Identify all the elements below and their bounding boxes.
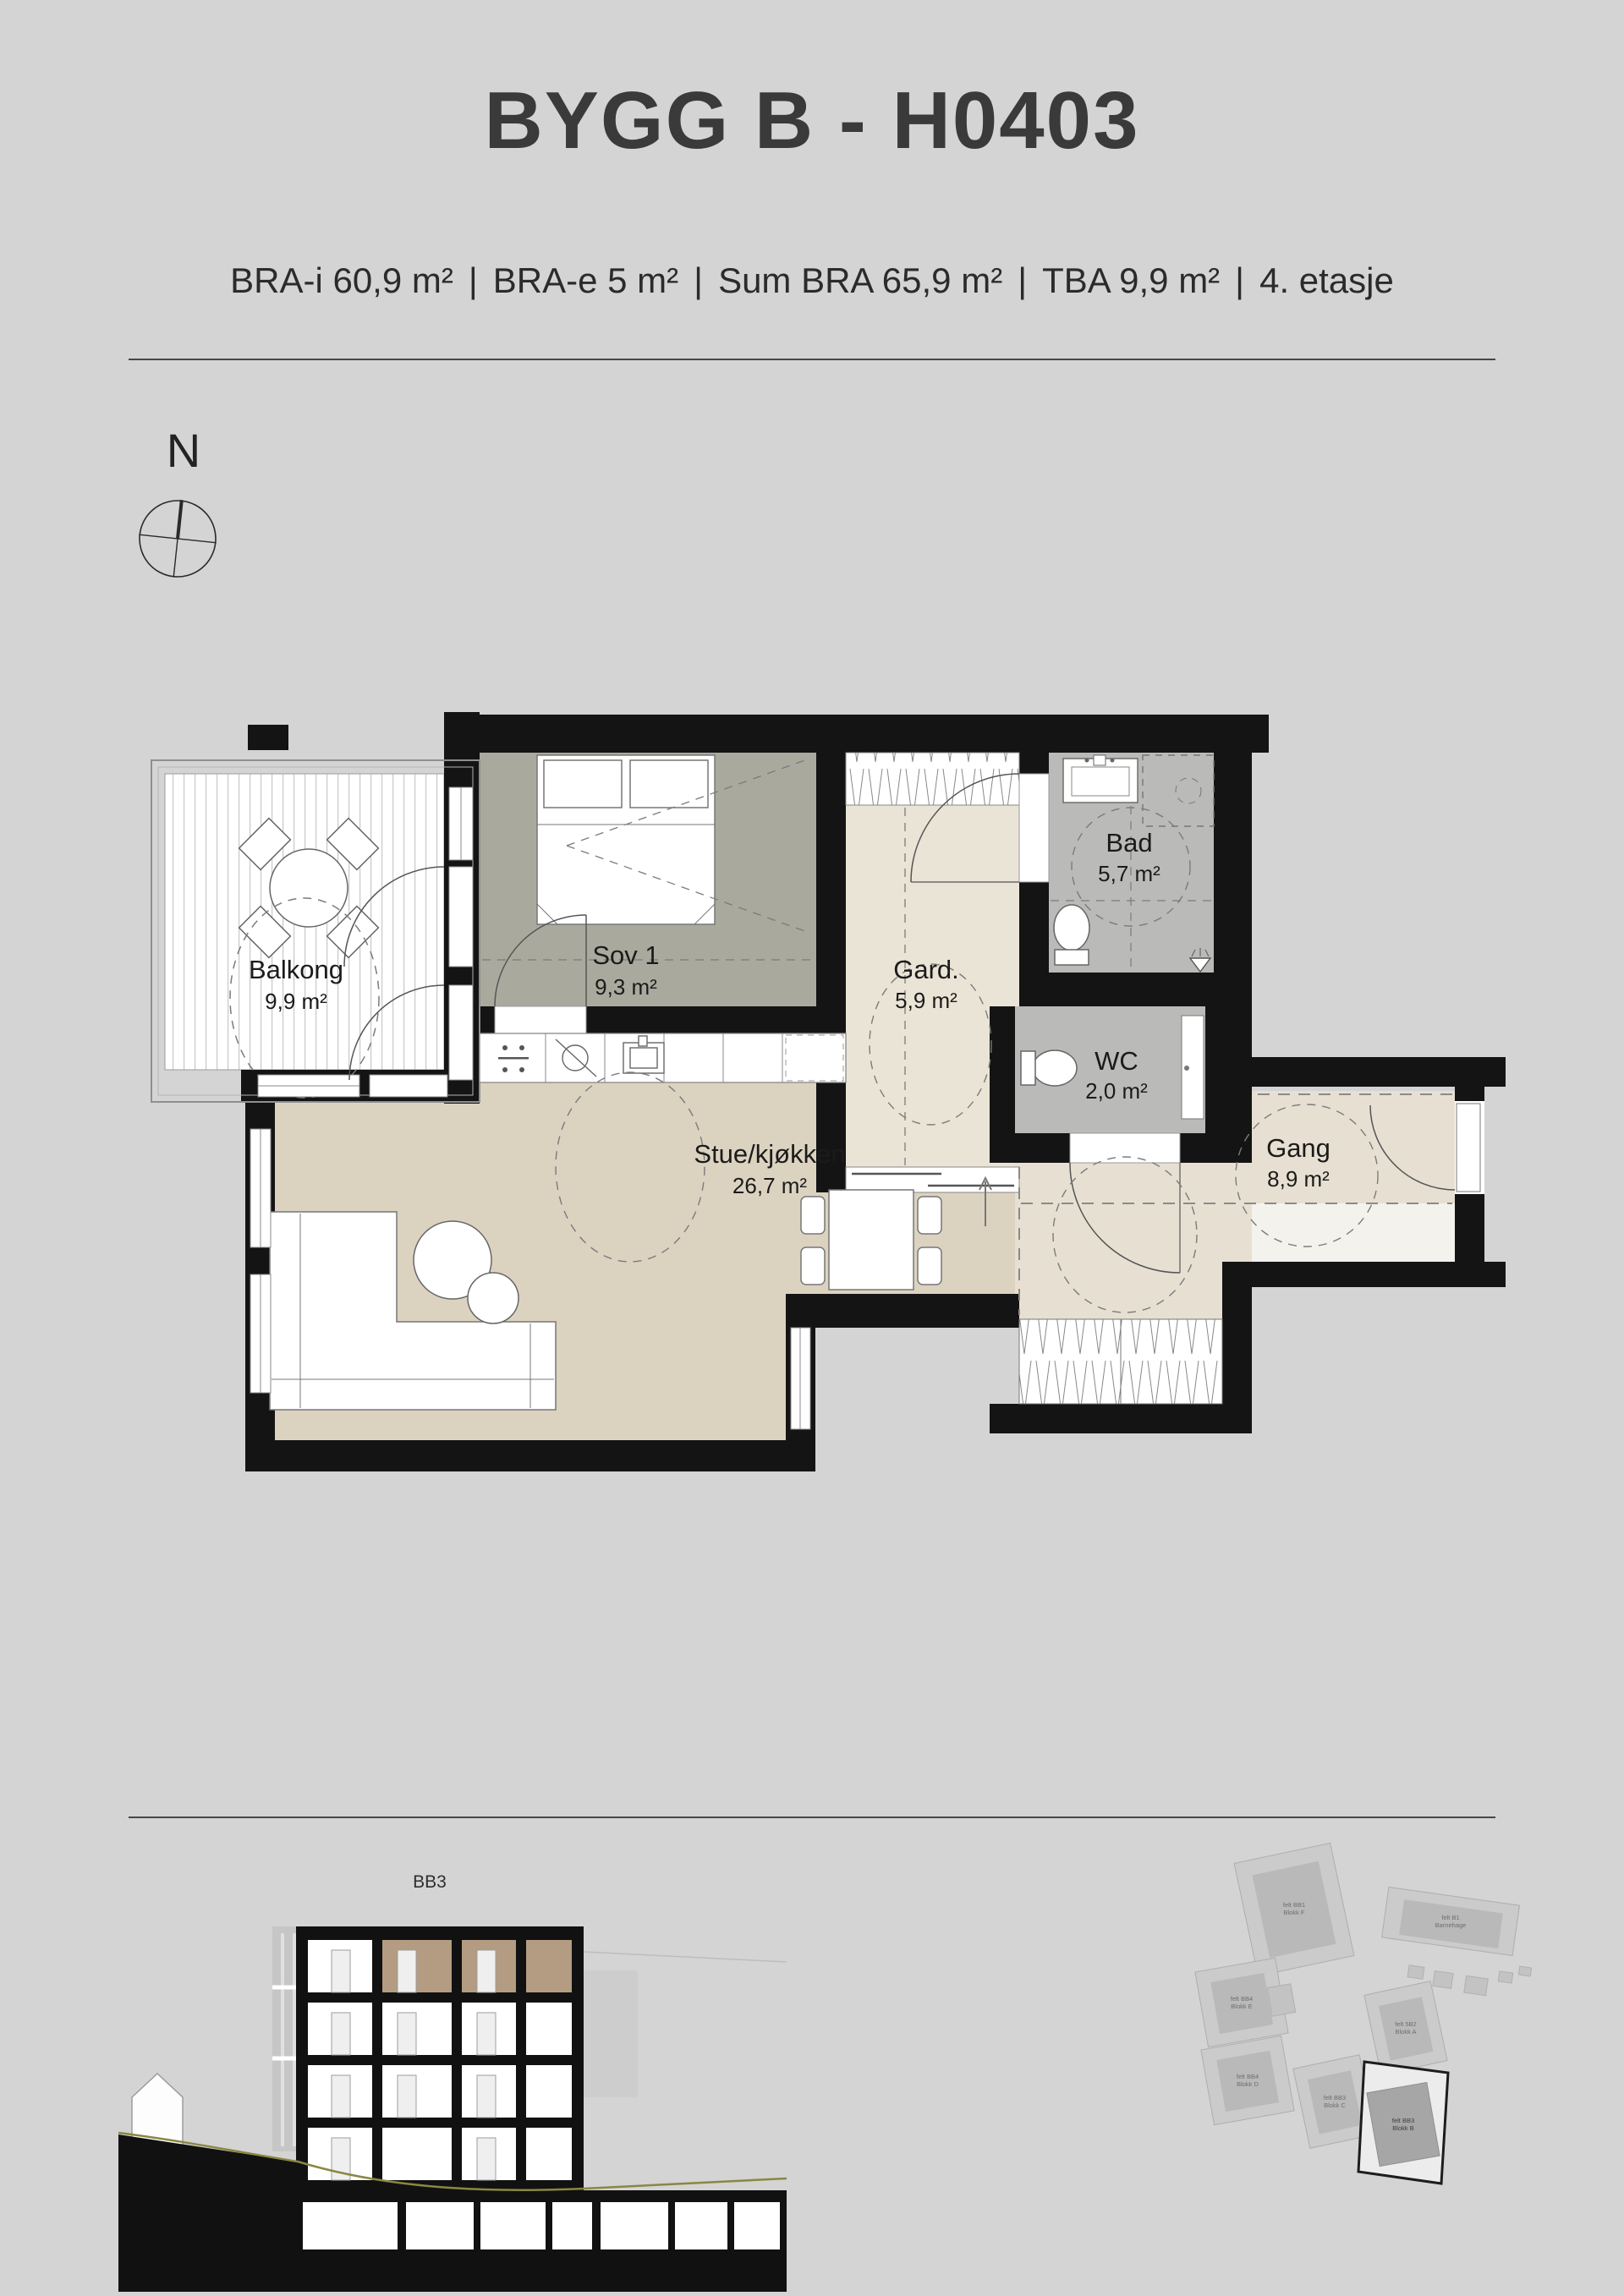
- toilet-icon: [1021, 1050, 1077, 1086]
- site-label: Barnehage: [1435, 1921, 1467, 1929]
- room-label-sov1: Sov 1: [592, 940, 659, 970]
- section-label: BB3: [413, 1872, 447, 1892]
- spec-separator: |: [1235, 260, 1244, 300]
- room-area-gard: 5,9 m²: [895, 988, 957, 1013]
- room-area-wc: 2,0 m²: [1085, 1078, 1148, 1104]
- room-label-gard: Gard.: [893, 955, 959, 984]
- spec-line: BRA-i 60,9 m²|BRA-e 5 m²|Sum BRA 65,9 m²…: [0, 260, 1624, 301]
- ground-left: [118, 2134, 296, 2292]
- site-label: Blokk F: [1283, 1909, 1304, 1916]
- kitchen-counter-icon: [480, 1033, 846, 1082]
- site-label: Blokk D: [1237, 2080, 1259, 2088]
- room-label-balkong: Balkong: [249, 955, 343, 984]
- room-label-stue: Stue/kjøkken: [694, 1139, 845, 1169]
- site-building-b1: felt B1 Barnehage: [1382, 1887, 1532, 1995]
- site-label: Blokk E: [1231, 2003, 1252, 2010]
- room-area-sov1: 9,3 m²: [595, 974, 657, 1000]
- bed-icon: [537, 755, 715, 924]
- room-label-wc: WC: [1095, 1046, 1138, 1076]
- site-plan: felt BB1 Blokk F felt B1 Barnehage felt …: [1167, 1827, 1565, 2258]
- balcony-table-icon: [270, 849, 348, 927]
- coffee-table-icon: [468, 1273, 518, 1323]
- spec-separator: |: [694, 260, 703, 300]
- spec-sum-bra: Sum BRA 65,9 m²: [718, 260, 1002, 300]
- wardrobe-icon: [846, 753, 1019, 805]
- site-building-b-highlighted: felt BB3 Blokk B: [1358, 2062, 1448, 2184]
- site-label: Blokk A: [1395, 2028, 1416, 2036]
- sectioned-building: [296, 1926, 787, 2292]
- building-section: BB3: [118, 1852, 787, 2292]
- spec-separator: |: [469, 260, 478, 300]
- site-label: felt BB3: [1324, 2094, 1346, 2101]
- room-area-gang: 8,9 m²: [1267, 1166, 1330, 1192]
- room-area-stue: 26,7 m²: [732, 1173, 807, 1198]
- compass-north-label: N: [167, 424, 200, 477]
- site-building-d: felt BB4 Blokk D: [1201, 2036, 1294, 2124]
- gang-floor-lower: [1252, 1203, 1455, 1262]
- room-area-bad: 5,7 m²: [1098, 861, 1160, 886]
- site-label: Blokk C: [1324, 2101, 1346, 2109]
- floor-plan: Balkong 9,9 m² Sov 1 9,3 m² Gard. 5,9 m²…: [140, 706, 1510, 1484]
- divider-top: [129, 359, 1495, 360]
- page-title: BYGG B - H0403: [0, 74, 1624, 167]
- spec-floor: 4. etasje: [1259, 260, 1394, 300]
- site-label: felt BB1: [1283, 1901, 1305, 1909]
- site-label: Blokk B: [1392, 2124, 1413, 2132]
- floorplan-sheet: { "header": { "title": "BYGG B - H0403",…: [0, 0, 1624, 2296]
- spec-separator: |: [1018, 260, 1027, 300]
- room-area-balkong: 9,9 m²: [265, 989, 327, 1014]
- site-building-a: felt 5B2 Blokk A: [1364, 1981, 1447, 2075]
- sliding-door-icon: [846, 1167, 1019, 1192]
- balcony-door-panel: [370, 1075, 447, 1097]
- north-compass-icon: N: [76, 406, 296, 626]
- toilet-icon: [1054, 905, 1089, 965]
- site-building-f: felt BB1 Blokk F: [1234, 1843, 1354, 1975]
- spec-bra-e: BRA-e 5 m²: [493, 260, 678, 300]
- site-label: felt BB4: [1237, 2073, 1259, 2080]
- room-label-gang: Gang: [1266, 1133, 1330, 1163]
- spec-tba: TBA 9,9 m²: [1042, 260, 1220, 300]
- site-label: felt 5B2: [1395, 2020, 1416, 2028]
- entrance-door-panel: [1457, 1104, 1480, 1192]
- spec-bra-i: BRA-i 60,9 m²: [230, 260, 453, 300]
- room-label-bad: Bad: [1106, 828, 1152, 858]
- hall-floor: [1015, 1163, 1252, 1319]
- divider-bottom: [129, 1817, 1495, 1818]
- site-label: felt BB3: [1392, 2117, 1414, 2124]
- site-label: felt BB4: [1231, 1995, 1253, 2003]
- sink-icon: [1063, 755, 1138, 803]
- site-label: felt B1: [1441, 1914, 1459, 1921]
